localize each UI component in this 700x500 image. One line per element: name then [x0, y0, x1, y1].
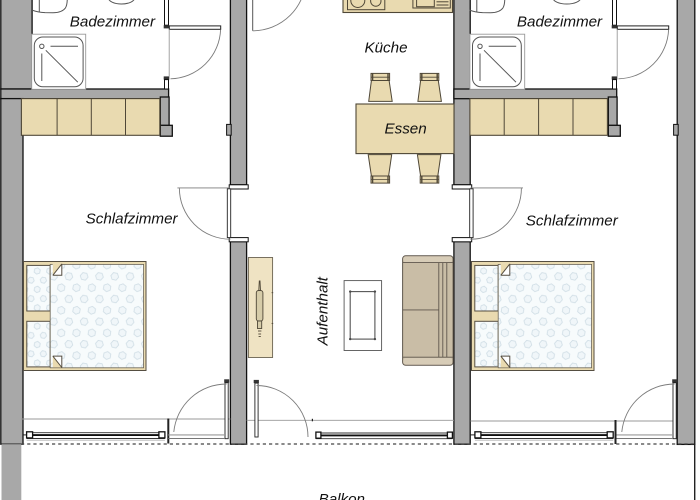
- svg-text:Badezimmer: Badezimmer: [517, 14, 603, 31]
- svg-text:Aufenthalt: Aufenthalt: [314, 276, 331, 346]
- svg-text:Essen: Essen: [384, 121, 426, 138]
- svg-text:Badezimmer: Badezimmer: [70, 13, 156, 30]
- svg-text:Balkon: Balkon: [319, 491, 365, 500]
- svg-text:Schlafzimmer: Schlafzimmer: [86, 210, 179, 227]
- svg-text:Küche: Küche: [364, 39, 407, 56]
- svg-text:Schlafzimmer: Schlafzimmer: [526, 212, 619, 229]
